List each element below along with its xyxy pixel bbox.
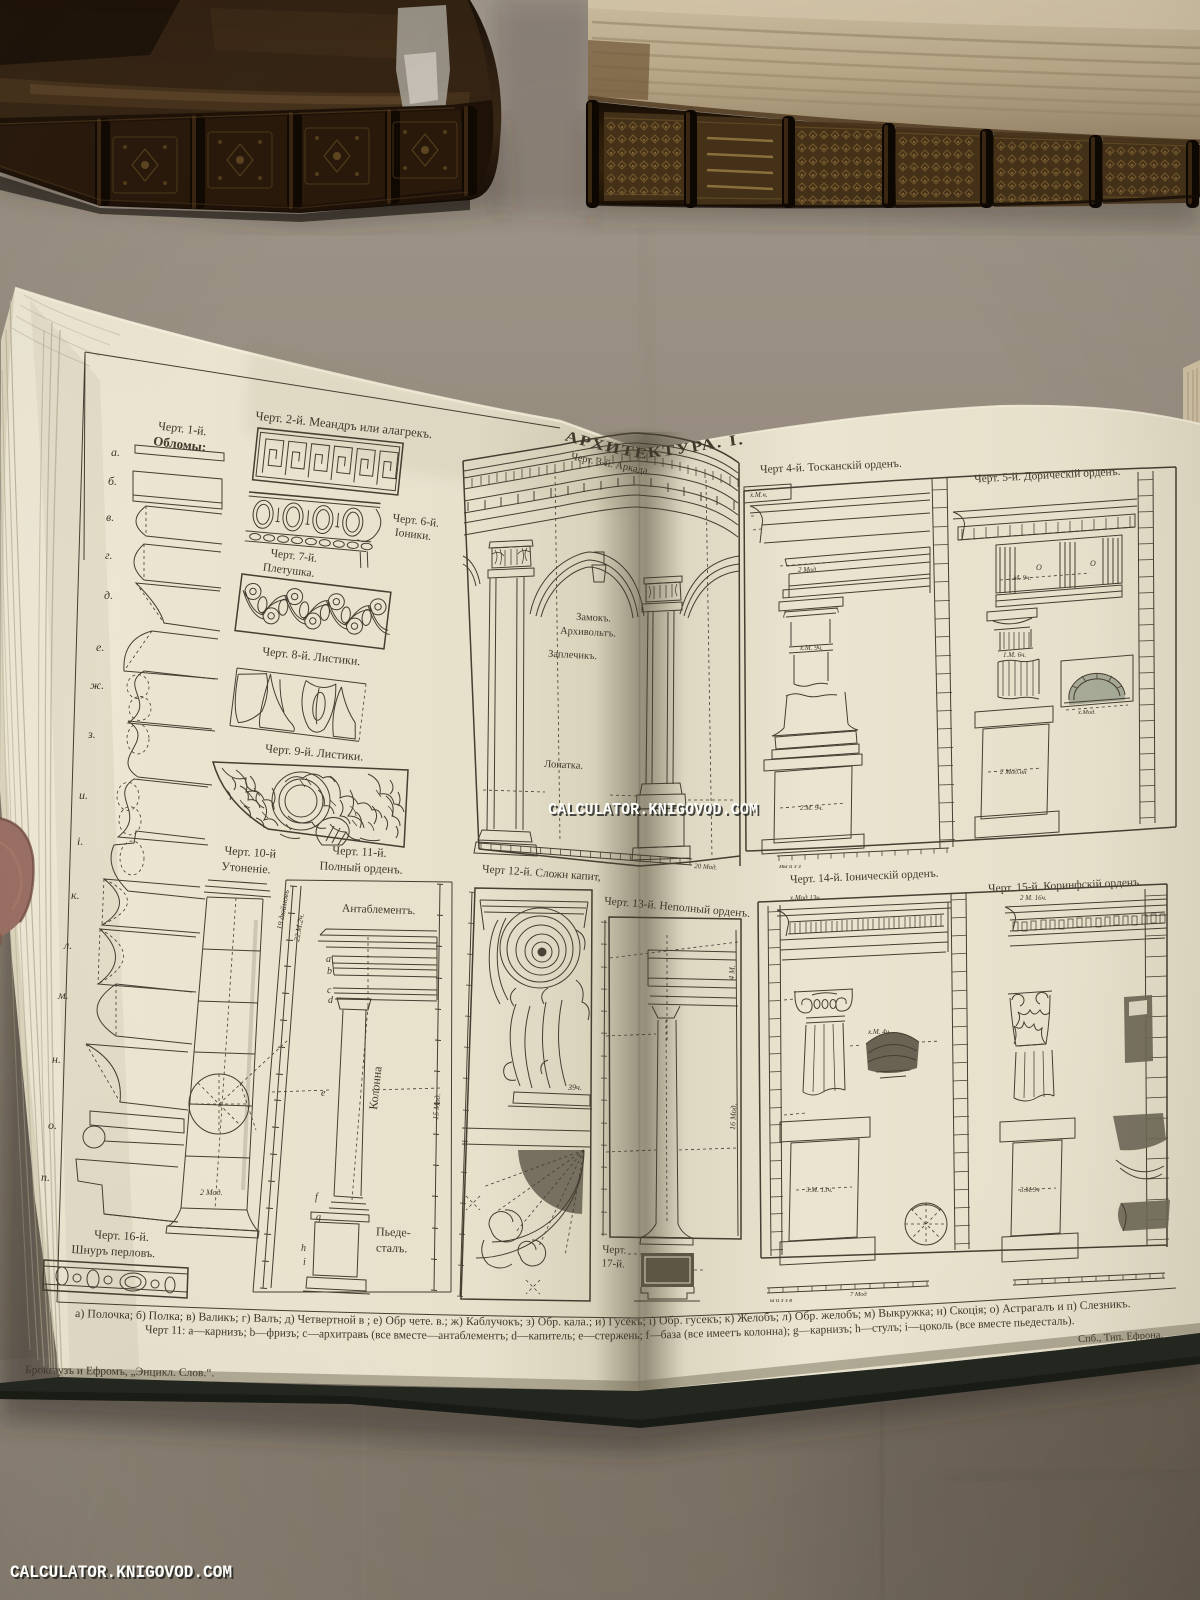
svg-text:CALCULATOR.KNIGOVOD.COM: CALCULATOR.KNIGOVOD.COM (10, 1563, 232, 1583)
svg-text:CALCULATOR.KNIGOVOD.COM: CALCULATOR.KNIGOVOD.COM (548, 801, 758, 820)
